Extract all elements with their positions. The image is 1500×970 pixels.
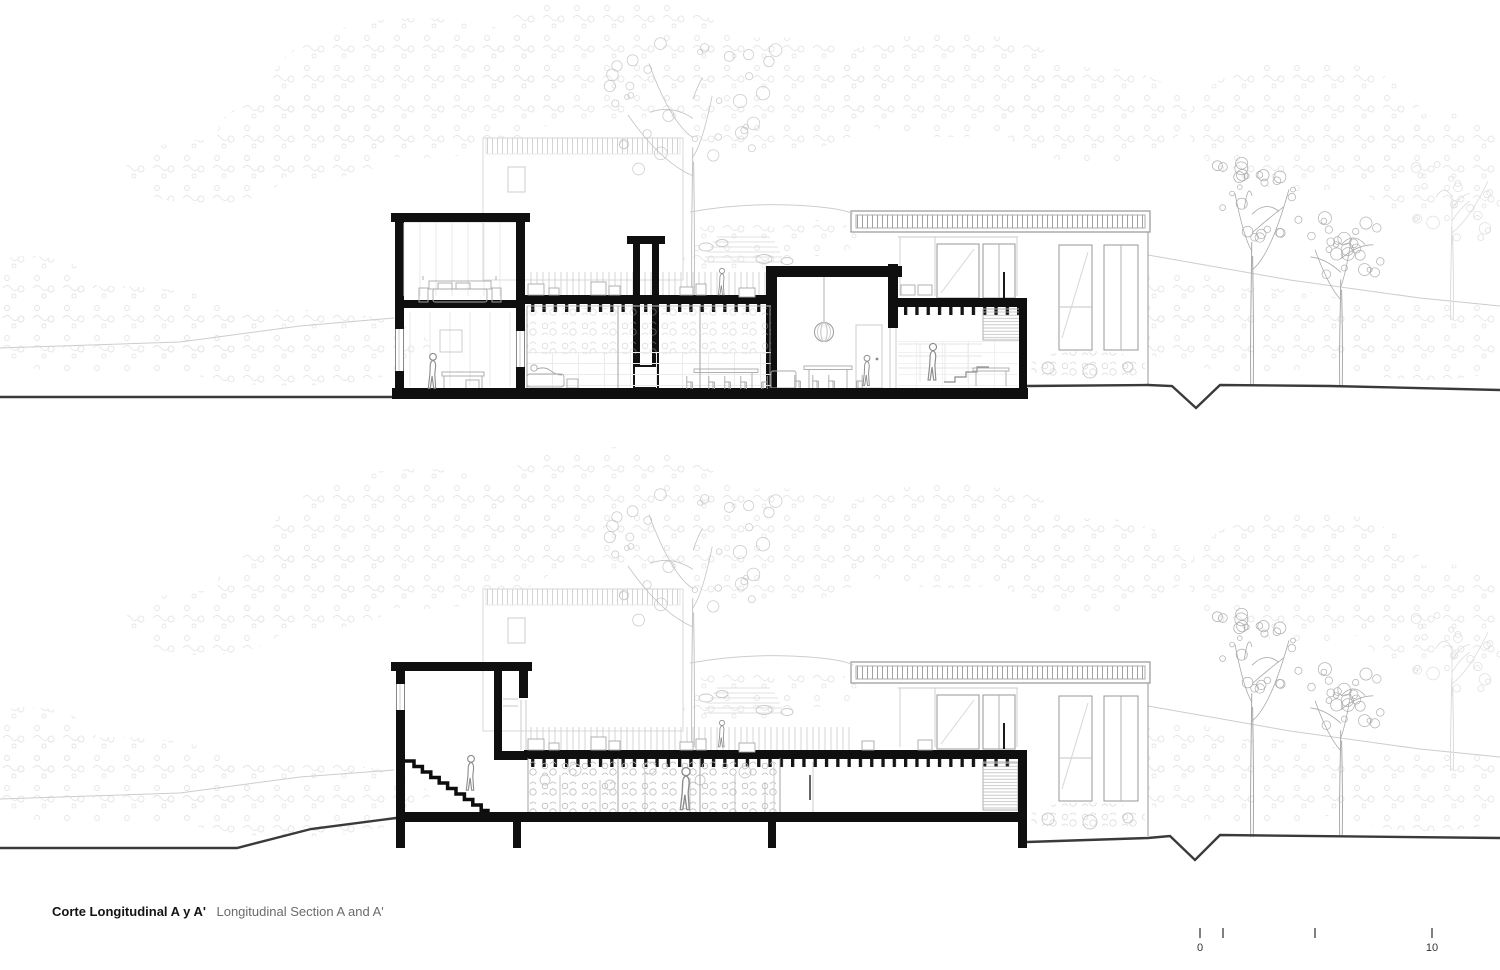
ground-line-right bbox=[1027, 835, 1500, 860]
green-wall bbox=[527, 308, 771, 354]
caption-english: Longitudinal Section A and A' bbox=[216, 904, 383, 919]
section-bottom bbox=[0, 447, 1500, 860]
deck-furniture bbox=[528, 284, 544, 295]
sheet-caption: Corte Longitudinal A y A' Longitudinal S… bbox=[52, 903, 384, 920]
deck-furniture bbox=[918, 740, 932, 750]
deck-furniture bbox=[549, 288, 559, 295]
deck-furniture bbox=[591, 282, 606, 295]
deck-slab bbox=[524, 750, 1018, 759]
scale-label-end: 10 bbox=[1426, 942, 1438, 954]
deck-furniture bbox=[901, 285, 915, 295]
deck-furniture bbox=[696, 284, 706, 295]
louver-panel bbox=[983, 762, 1018, 810]
architectural-sheet: Corte Longitudinal A y A' Longitudinal S… bbox=[0, 0, 1500, 970]
deck-slab-right bbox=[896, 298, 1027, 307]
person-figure bbox=[428, 353, 436, 388]
deck-furniture bbox=[528, 739, 544, 750]
floor-slab bbox=[392, 388, 1028, 399]
section-top bbox=[0, 0, 1500, 408]
garden-fence bbox=[527, 272, 770, 298]
deck-furniture bbox=[680, 287, 693, 295]
deck-furniture bbox=[918, 285, 932, 295]
dining-table-pavilion bbox=[804, 366, 852, 370]
pendant-lamp bbox=[815, 277, 834, 342]
scale-label-start: 0 bbox=[1197, 942, 1203, 954]
louver-panel bbox=[983, 309, 1022, 340]
chair bbox=[813, 375, 819, 388]
deck-slab-left bbox=[524, 295, 773, 304]
pavilion-roof bbox=[766, 266, 902, 277]
planter-band bbox=[528, 758, 780, 812]
section-drawing: Corte Longitudinal A y A' Longitudinal S… bbox=[0, 0, 1500, 970]
deck-furniture bbox=[609, 286, 620, 295]
ground-line-right bbox=[1027, 385, 1500, 408]
caption-spanish: Corte Longitudinal A y A' bbox=[52, 904, 206, 919]
floor-slab bbox=[396, 812, 1027, 822]
scale-bar: 0 10 bbox=[1197, 928, 1438, 954]
deck-furniture bbox=[680, 742, 693, 750]
deck-furniture bbox=[609, 741, 620, 750]
chair bbox=[829, 375, 835, 388]
deck-furniture bbox=[549, 743, 559, 750]
deck-furniture bbox=[591, 737, 606, 750]
chair bbox=[857, 375, 863, 388]
person-figure bbox=[466, 755, 474, 790]
deck-furniture bbox=[862, 741, 874, 750]
deck-furniture bbox=[739, 288, 755, 297]
deck-furniture bbox=[696, 739, 706, 750]
deck-furniture bbox=[739, 743, 755, 752]
person-figure bbox=[863, 355, 870, 385]
